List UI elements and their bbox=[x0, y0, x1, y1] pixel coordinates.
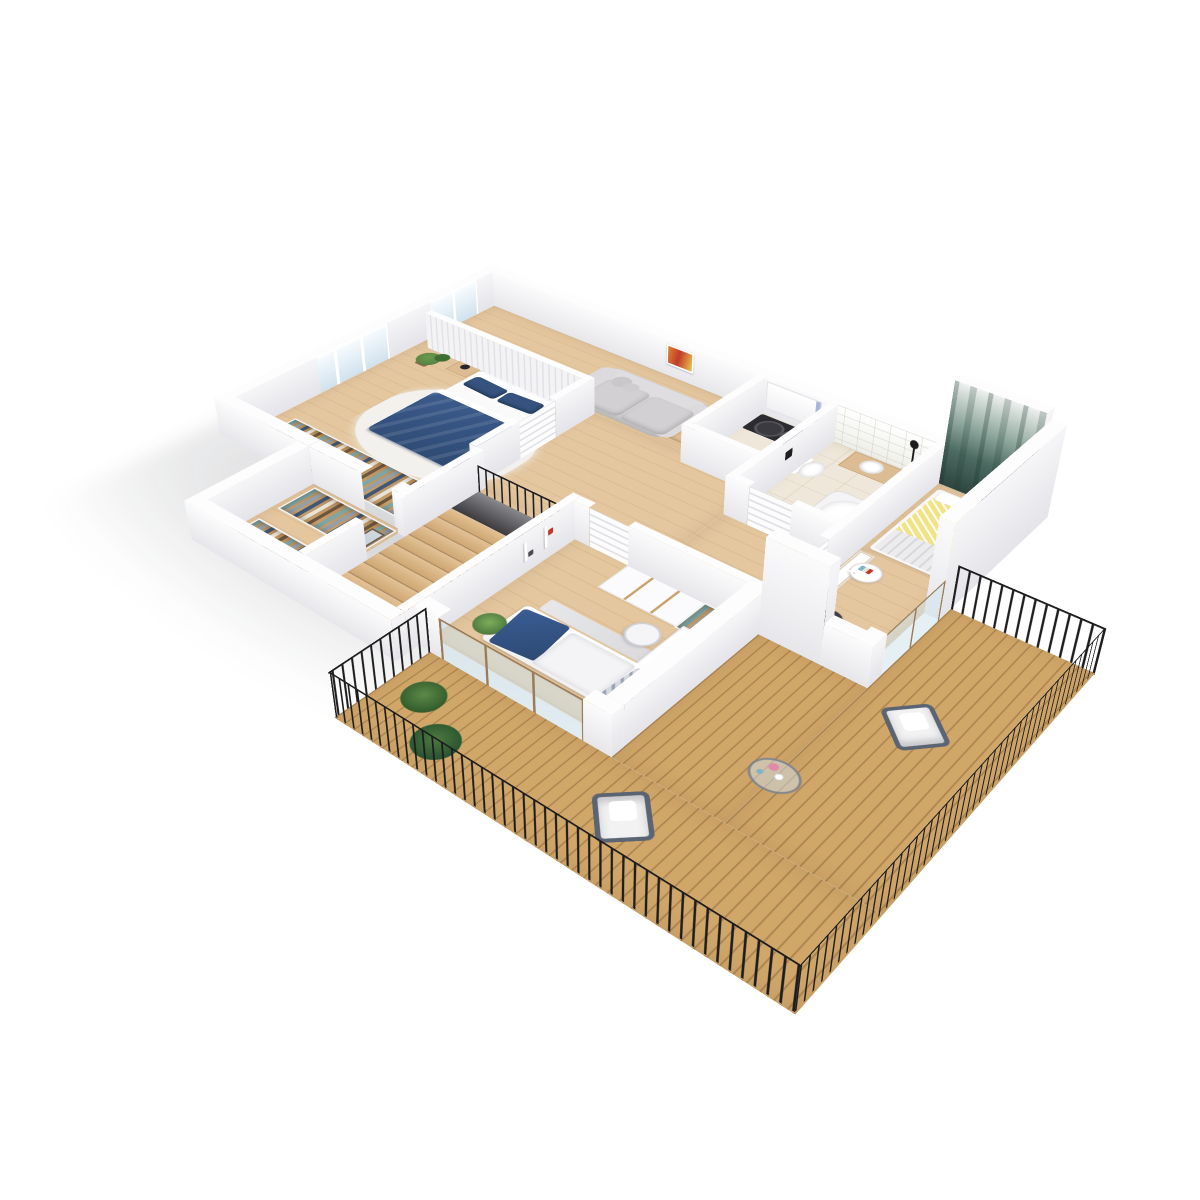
floor-plan-3d bbox=[46, 306, 1178, 1015]
wall-shelf bbox=[544, 526, 547, 548]
shelf-decor-red bbox=[548, 527, 553, 536]
wall-shelf bbox=[524, 542, 527, 562]
shelf-decor-dark bbox=[528, 549, 533, 557]
balcony-armchair-pillow bbox=[608, 800, 638, 821]
floor-plan-stage bbox=[0, 0, 1200, 1200]
thermostat-panel bbox=[785, 447, 793, 460]
